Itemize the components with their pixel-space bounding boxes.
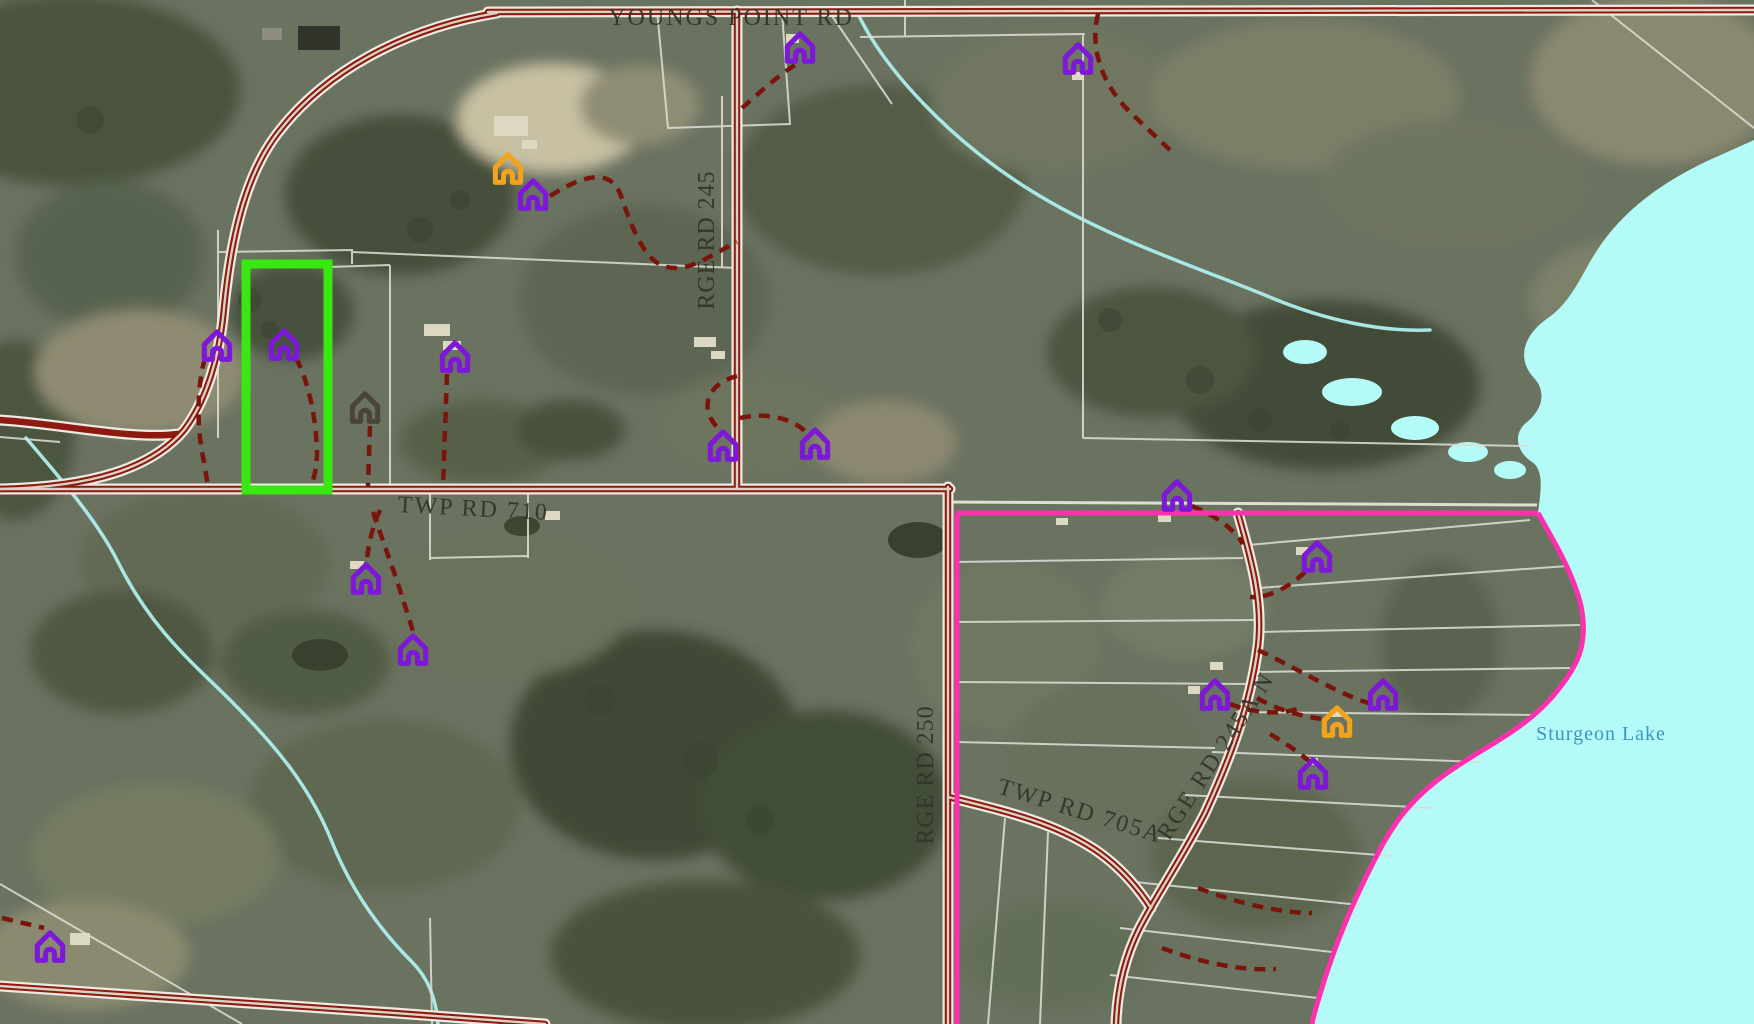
water-label-sturgeon-lake: Sturgeon Lake bbox=[1536, 723, 1666, 745]
road-label-rge-rd-245: RGE RD 245 bbox=[694, 170, 720, 309]
road-label-rge-rd-250: RGE RD 250 bbox=[913, 705, 939, 844]
map-canvas[interactable]: YOUNGS POINT RDRGE RD 245TWP RD 710RGE R… bbox=[0, 0, 1754, 1024]
road-label-youngs-point-rd: YOUNGS POINT RD bbox=[608, 5, 854, 31]
